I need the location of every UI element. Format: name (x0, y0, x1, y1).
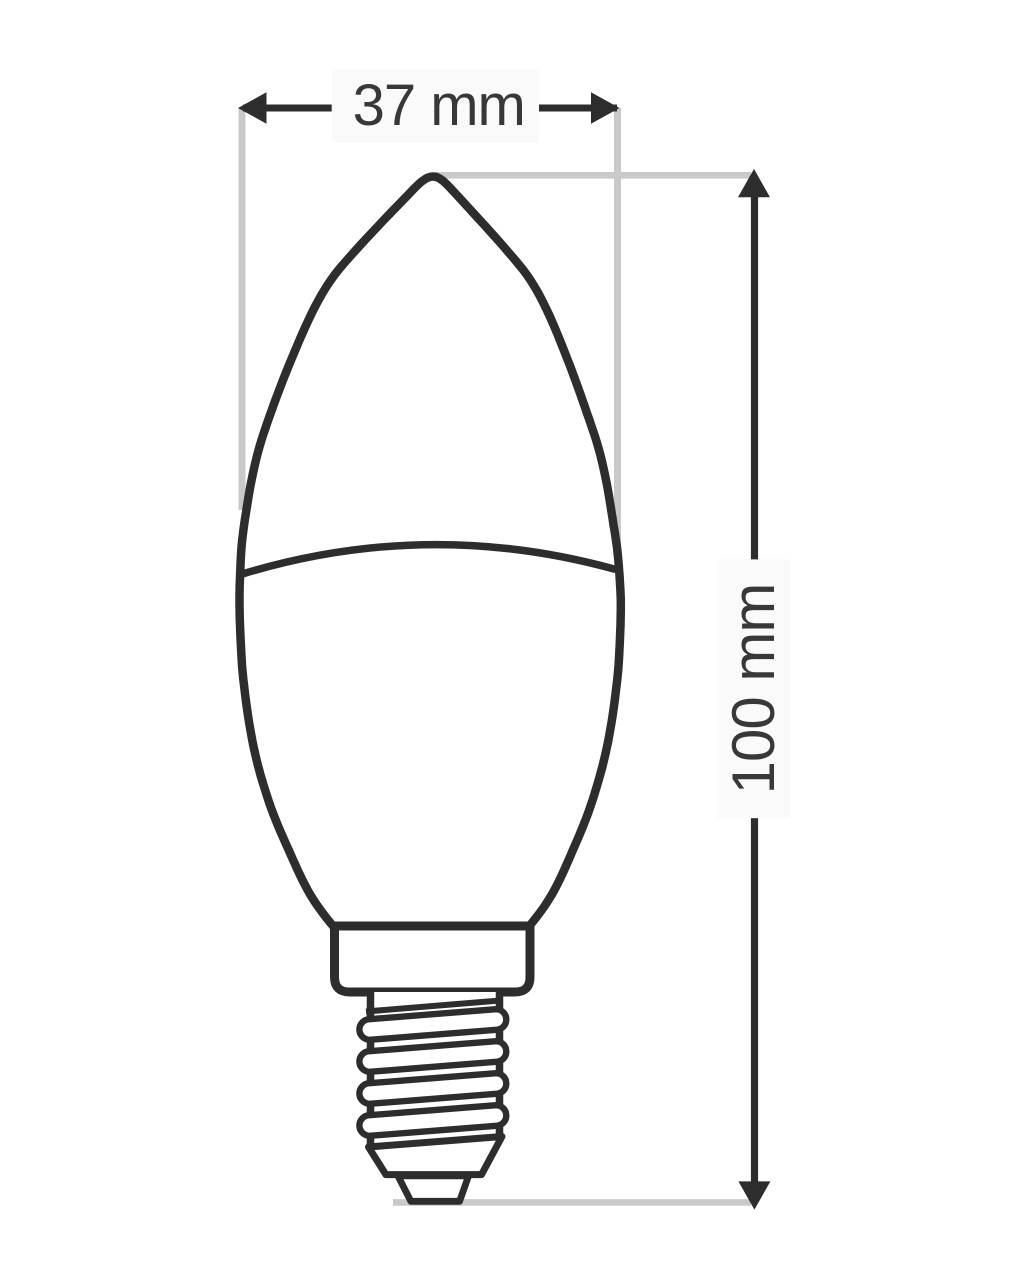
svg-text:37 mm: 37 mm (353, 73, 525, 138)
svg-text:100 mm: 100 mm (720, 584, 787, 795)
